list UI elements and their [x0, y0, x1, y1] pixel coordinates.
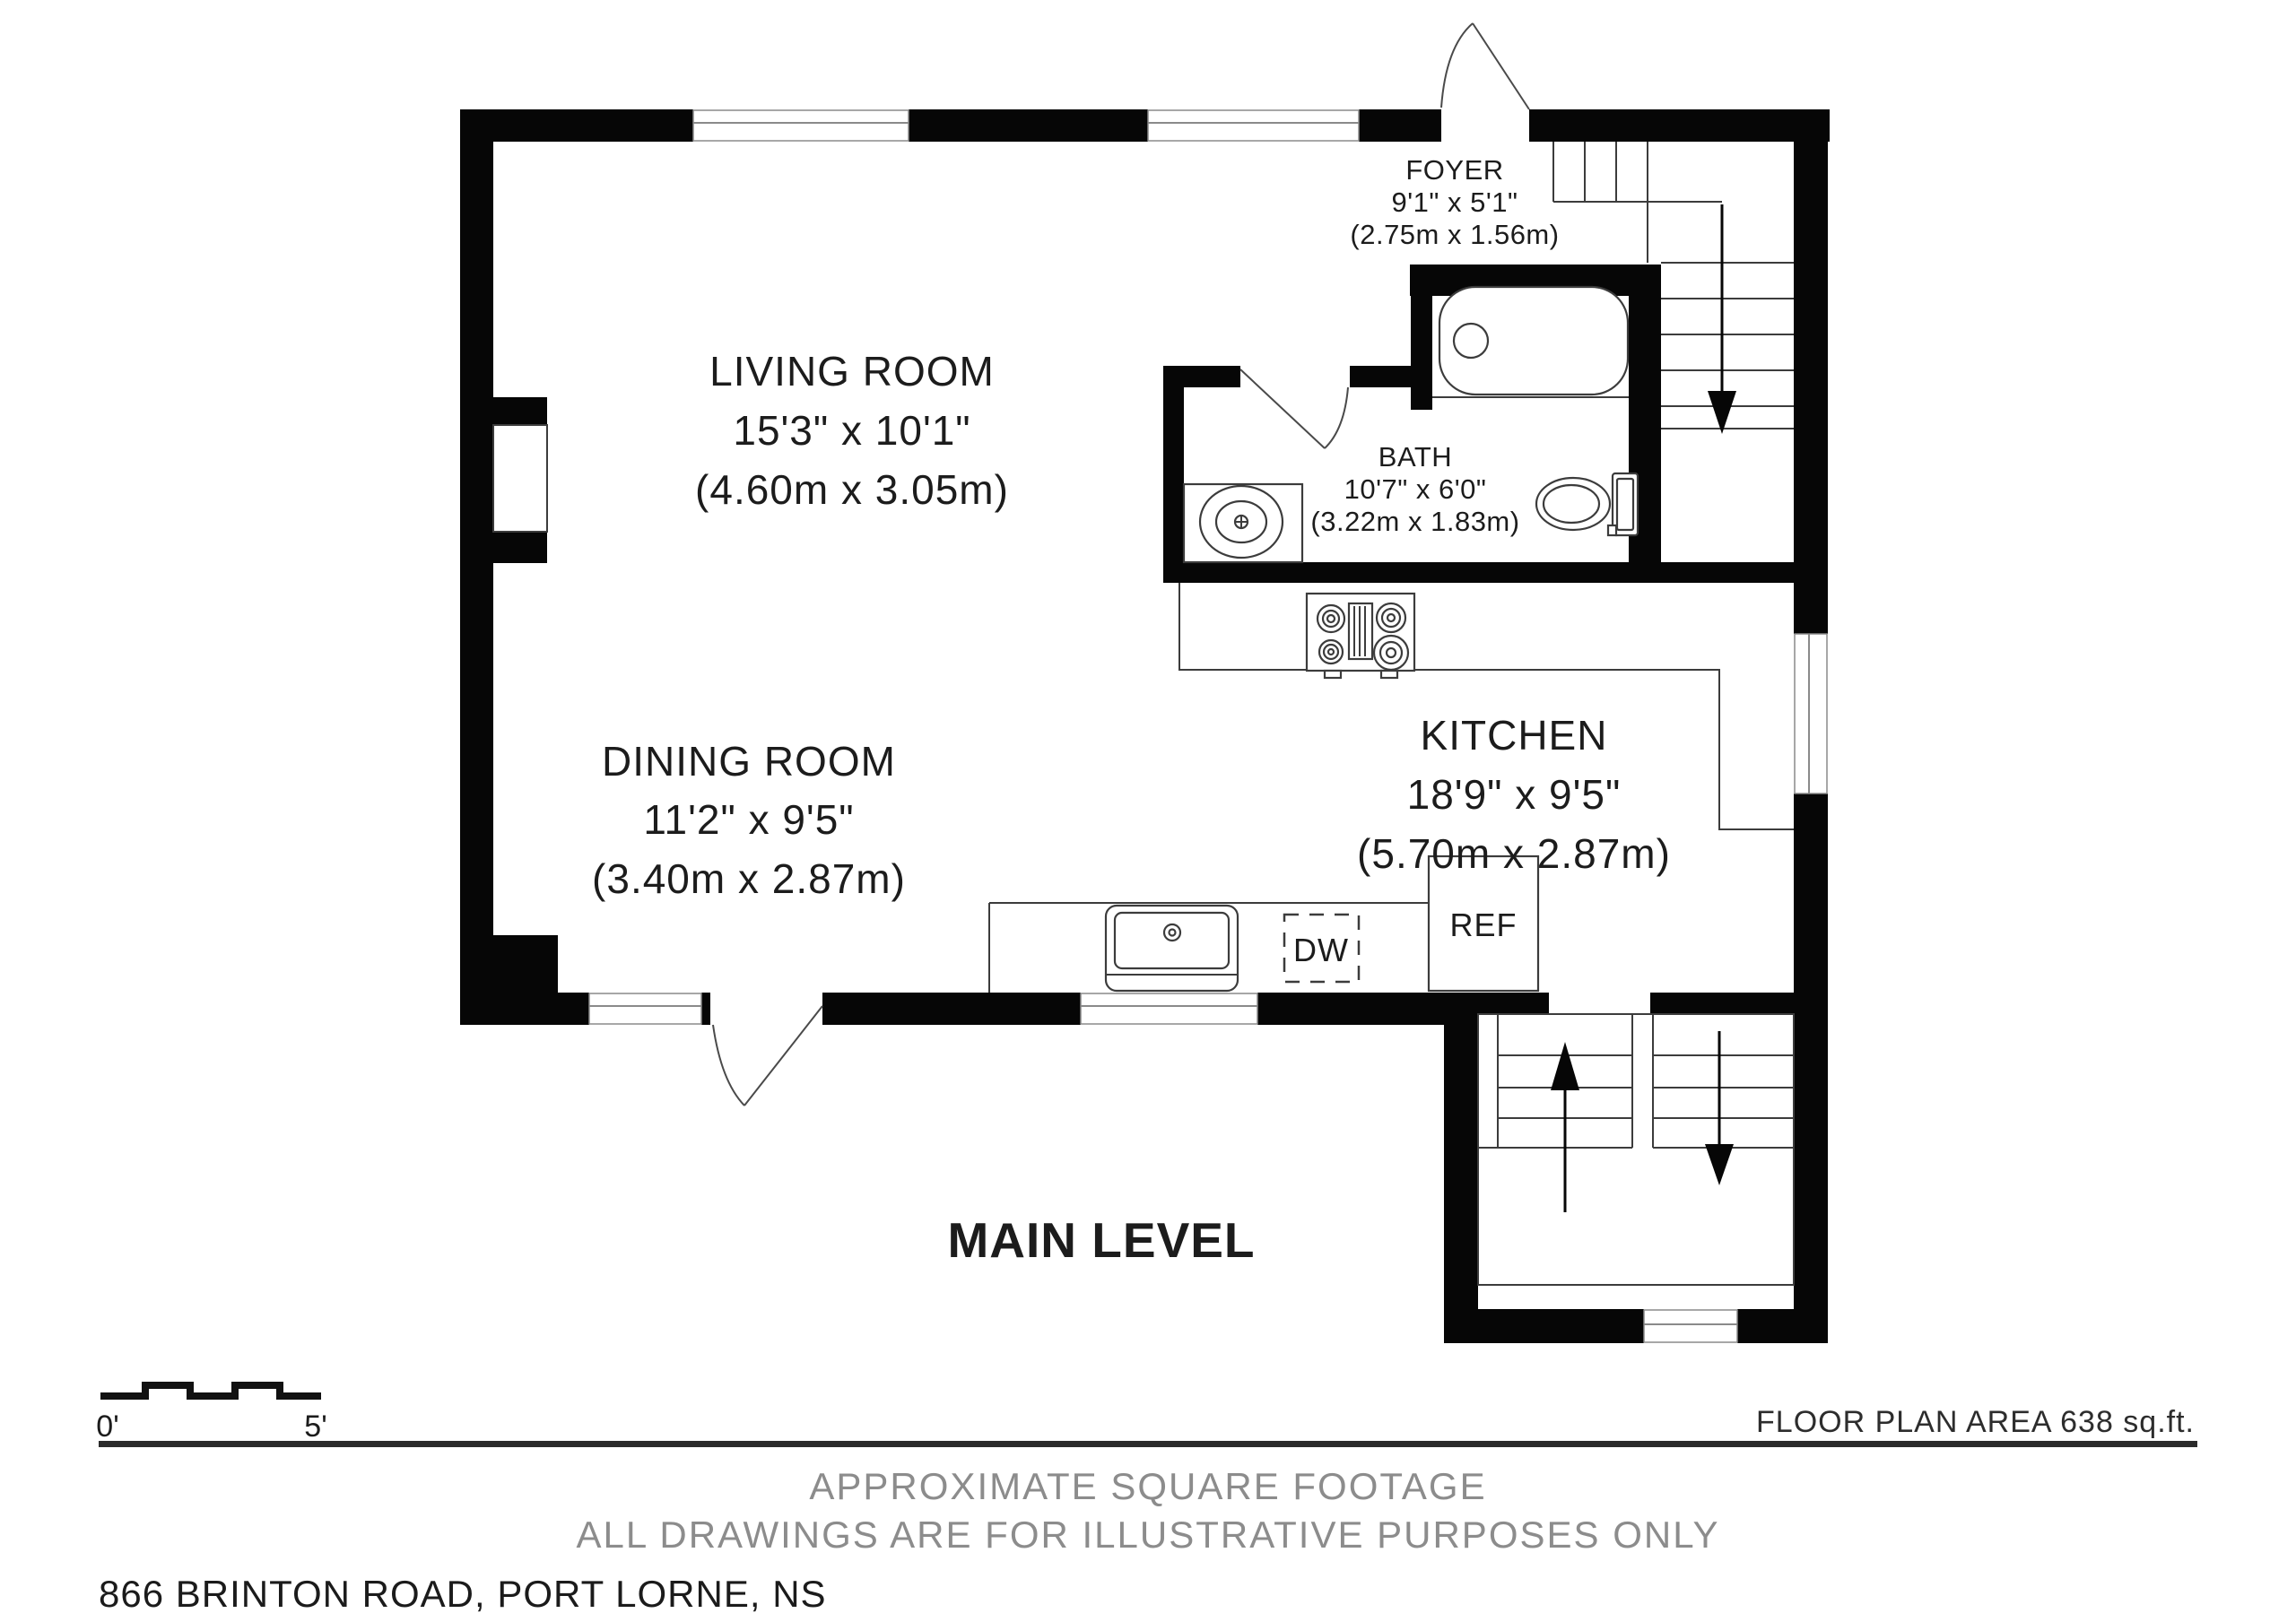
bath-inner-wall: [1411, 296, 1432, 410]
floor-plan-canvas: DW REF LIVING ROOM 15'3" x 10'1" (4.60m …: [0, 0, 2296, 1622]
dining-door: [713, 1006, 822, 1106]
window: [1795, 634, 1827, 794]
level-label: MAIN LEVEL: [947, 1212, 1255, 1268]
foyer-label: FOYER 9'1" x 5'1" (2.75m x 1.56m): [1350, 154, 1559, 250]
bathtub: [1432, 287, 1629, 397]
refrigerator-label: REF: [1450, 906, 1518, 943]
room-metric: (3.22m x 1.83m): [1310, 506, 1519, 537]
bath-door: [1240, 369, 1348, 448]
chimney-stub: [493, 397, 547, 425]
kitchen-label: KITCHEN 18'9" x 9'5" (5.70m x 2.87m): [1357, 712, 1671, 877]
bottom-wall-segment: [822, 993, 1081, 1025]
bath-topleft-wall: [1163, 366, 1240, 387]
scale-bar: 0' 5': [96, 1385, 326, 1444]
room-name: KITCHEN: [1421, 712, 1608, 759]
right-wall-segment: [1794, 109, 1828, 634]
bathroom-sink: [1184, 484, 1302, 562]
stairwell-left-wall: [1444, 993, 1478, 1343]
toilet: [1536, 473, 1638, 535]
left-wall: [460, 109, 493, 1025]
top-wall-segment: [909, 109, 1148, 142]
bath-left-wall: [1163, 366, 1184, 583]
window: [1081, 993, 1257, 1024]
floor-plan-area-note: FLOOR PLAN AREA 638 sq.ft.: [1756, 1405, 2195, 1439]
stairs-down-arrow-icon: [1705, 1144, 1734, 1185]
room-imperial: 15'3" x 10'1": [733, 407, 970, 454]
property-address: 866 BRINTON ROAD, PORT LORNE, NS: [99, 1573, 827, 1615]
dishwasher-label: DW: [1293, 932, 1349, 968]
room-imperial: 10'7" x 6'0": [1344, 473, 1487, 505]
kitchen-sink: [1106, 906, 1238, 991]
scale-end-label: 5': [304, 1409, 326, 1444]
window: [1644, 1310, 1737, 1342]
floor-plan-page: DW REF LIVING ROOM 15'3" x 10'1" (4.60m …: [0, 0, 2296, 1622]
room-metric: (5.70m x 2.87m): [1357, 830, 1671, 877]
bottom-wall-pier: [701, 993, 710, 1025]
right-wall-segment: [1794, 794, 1828, 1343]
room-imperial: 11'2" x 9'5": [643, 796, 854, 843]
bottom-wall-segment: [460, 993, 589, 1025]
footer-divider: [99, 1441, 2197, 1447]
top-wall-segment: [460, 109, 693, 142]
top-wall-segment: [1529, 109, 1830, 142]
stairwell-bottom-wall: [1737, 1309, 1828, 1343]
room-metric: (3.40m x 2.87m): [592, 855, 906, 902]
bath-door-stub: [1350, 366, 1411, 387]
lower-staircase: [1478, 1014, 1794, 1285]
bath-label: BATH 10'7" x 6'0" (3.22m x 1.83m): [1310, 441, 1519, 537]
stairwell-top-edge: [1650, 993, 1794, 1014]
stairwell-top-edge: [1478, 993, 1549, 1014]
room-metric: (4.60m x 3.05m): [695, 466, 1009, 513]
room-imperial: 18'9" x 9'5": [1407, 771, 1622, 818]
room-imperial: 9'1" x 5'1": [1391, 186, 1518, 218]
window: [589, 993, 701, 1024]
entry-door: [1441, 23, 1529, 109]
living-room-label: LIVING ROOM 15'3" x 10'1" (4.60m x 3.05m…: [695, 348, 1009, 513]
stove: [1307, 594, 1414, 678]
chimney-niche: [493, 425, 547, 532]
bottom-wall-segment: [1257, 993, 1444, 1025]
stairs-down-arrow-icon: [1708, 391, 1736, 434]
bath-bottom-wall: [1163, 562, 1794, 583]
disclaimer-line2: ALL DRAWINGS ARE FOR ILLUSTRATIVE PURPOS…: [577, 1514, 1720, 1556]
top-wall-segment: [1359, 109, 1441, 142]
scale-start-label: 0': [96, 1409, 118, 1444]
disclaimer-line1: APPROXIMATE SQUARE FOOTAGE: [809, 1465, 1486, 1507]
chimney-stub: [493, 532, 547, 563]
dining-room-label: DINING ROOM 11'2" x 9'5" (3.40m x 2.87m): [592, 738, 906, 902]
window: [693, 110, 909, 141]
room-name: DINING ROOM: [602, 738, 896, 785]
window: [1148, 110, 1359, 141]
stairs-up-arrow-icon: [1551, 1042, 1579, 1090]
room-name: LIVING ROOM: [709, 348, 995, 395]
room-metric: (2.75m x 1.56m): [1350, 219, 1559, 250]
stairwell-bottom-wall: [1444, 1309, 1644, 1343]
room-name: BATH: [1378, 441, 1452, 473]
dishwasher: DW: [1284, 915, 1359, 982]
room-name: FOYER: [1405, 154, 1503, 186]
